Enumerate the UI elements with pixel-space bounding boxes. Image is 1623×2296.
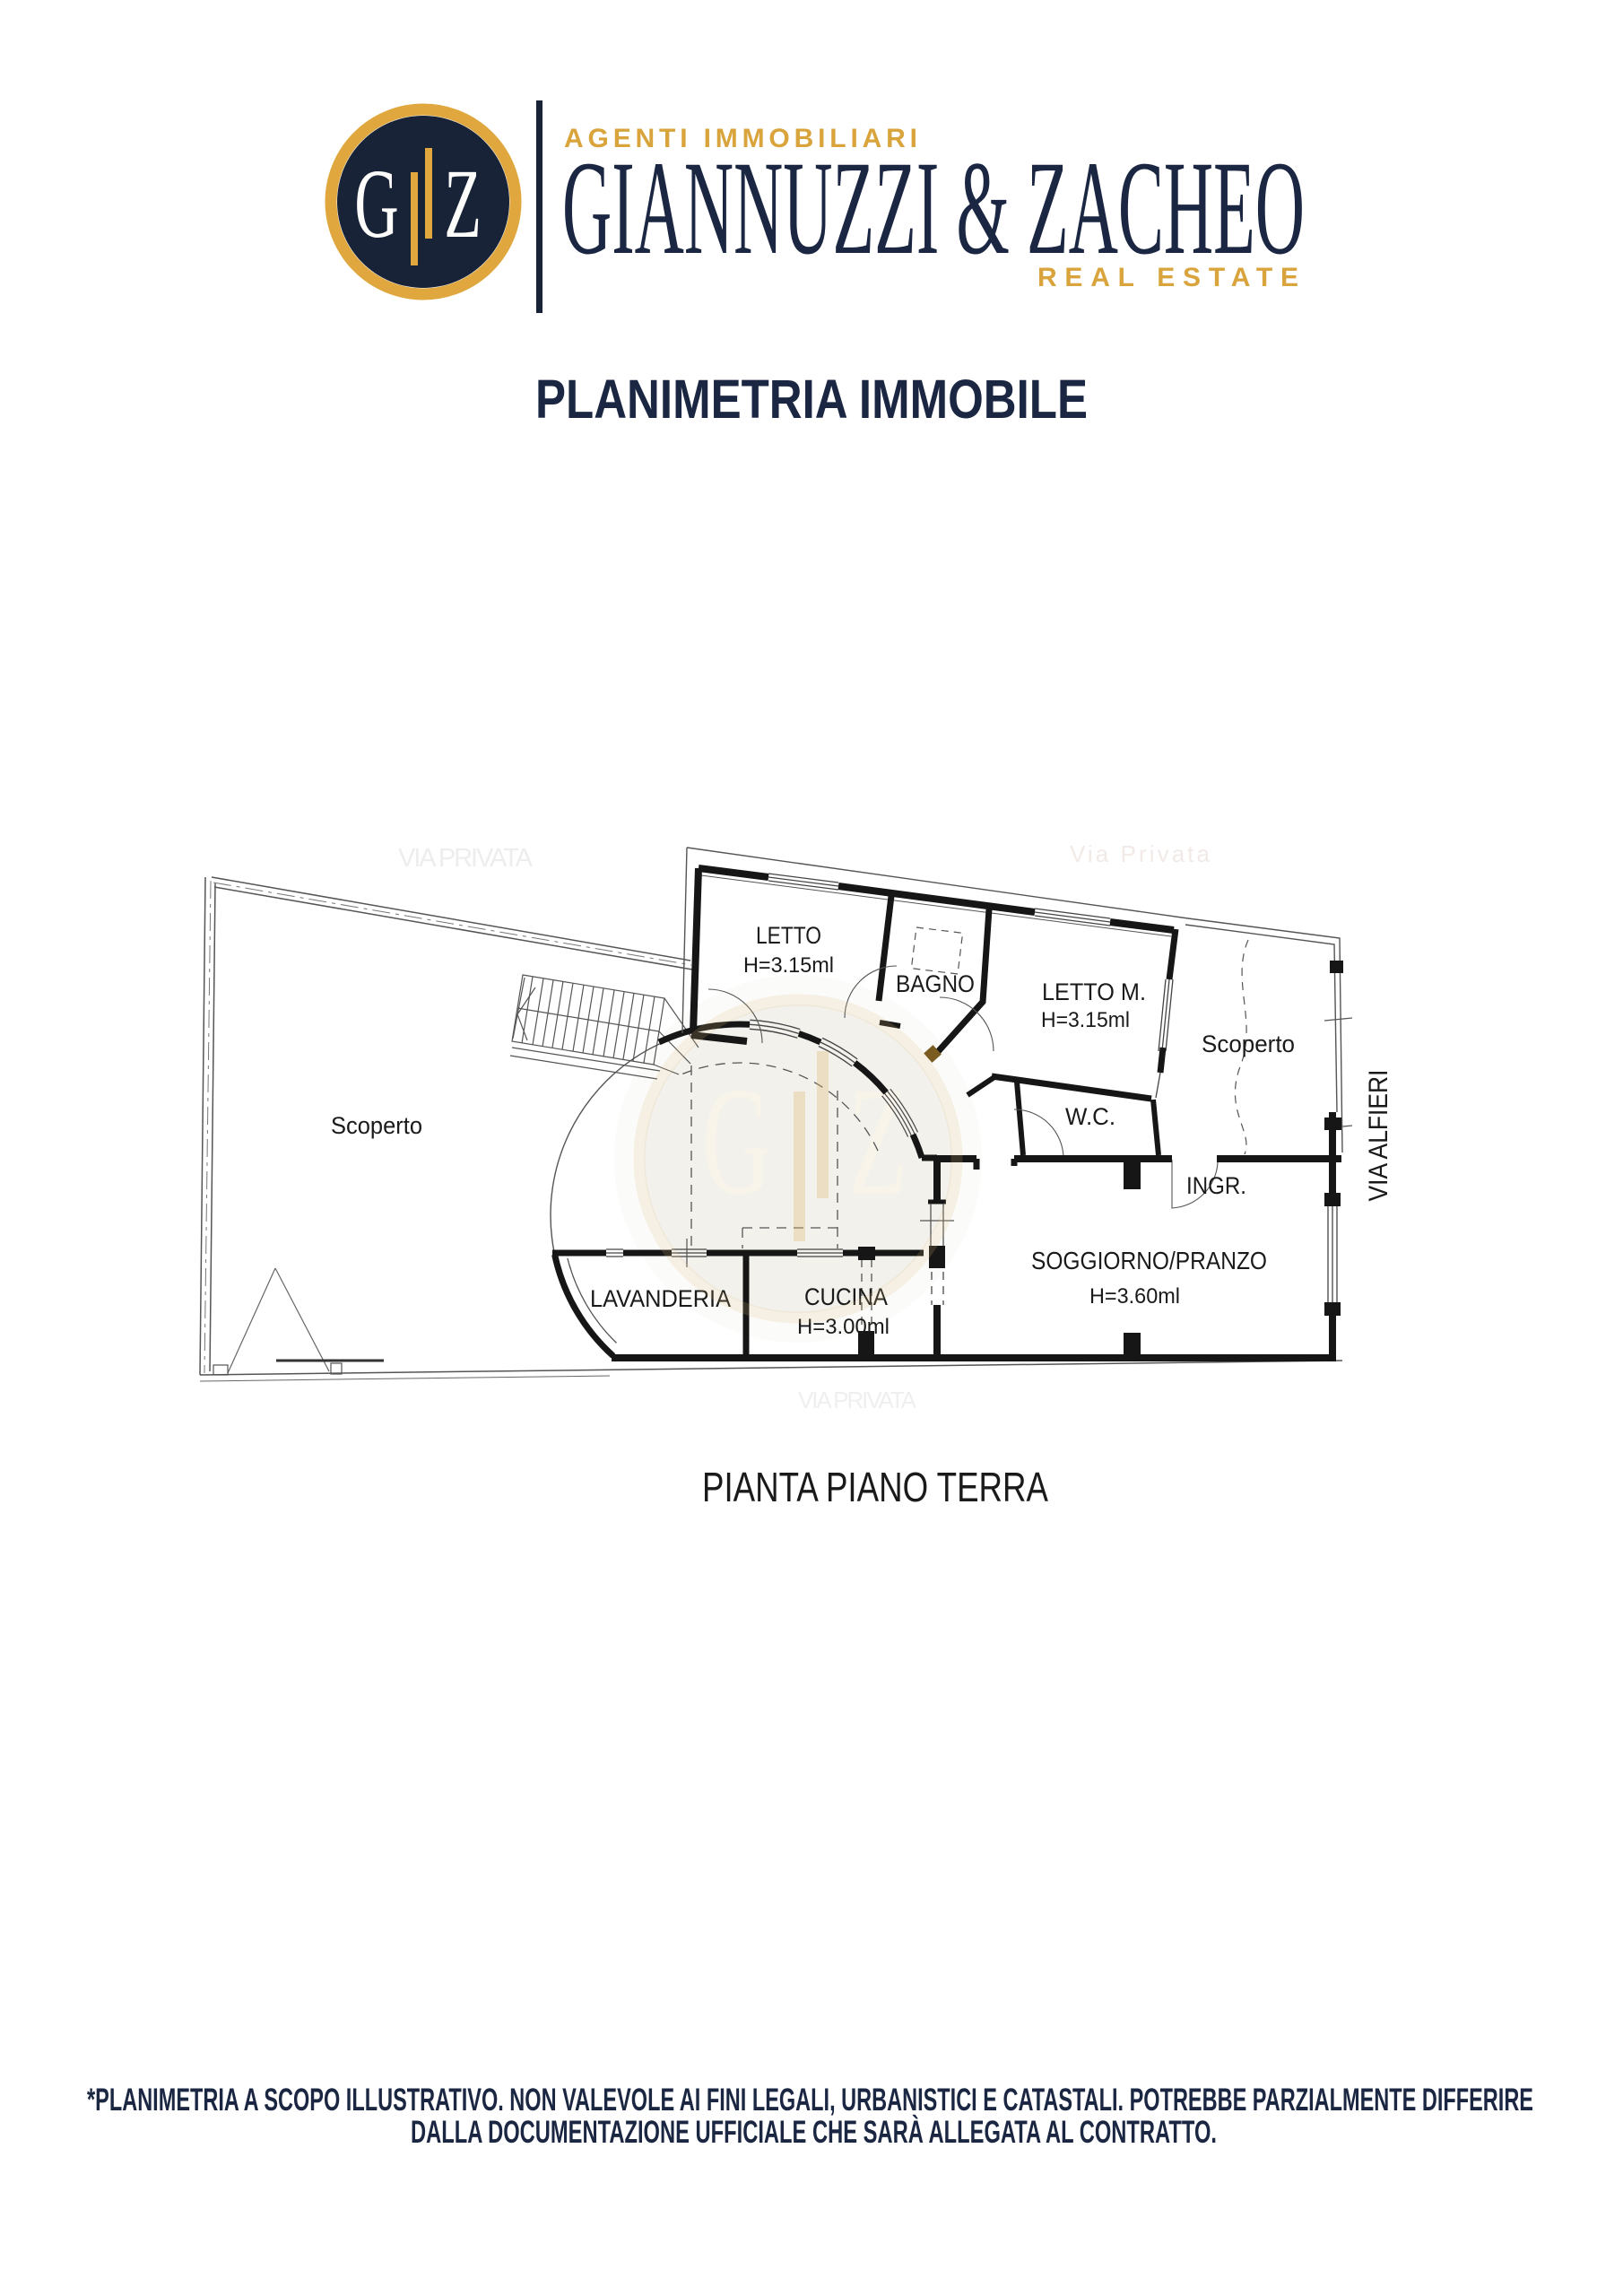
svg-text:H=3.15ml: H=3.15ml (1041, 1008, 1130, 1032)
svg-text:W.C.: W.C. (1065, 1103, 1115, 1130)
svg-text:VIA ALFIERI: VIA ALFIERI (1364, 1070, 1393, 1202)
svg-text:Z: Z (444, 148, 482, 258)
svg-text:INGR.: INGR. (1186, 1172, 1246, 1199)
svg-text:PLANIMETRIA IMMOBILE: PLANIMETRIA IMMOBILE (535, 369, 1088, 430)
svg-text:Scoperto: Scoperto (331, 1112, 422, 1139)
svg-text:Scoperto: Scoperto (1202, 1031, 1295, 1057)
svg-text:*PLANIMETRIA A SCOPO ILLUSTRAT: *PLANIMETRIA A SCOPO ILLUSTRATIVO. NON V… (87, 2083, 1533, 2118)
svg-text:GIANNUZZI & ZACHEO: GIANNUZZI & ZACHEO (562, 134, 1305, 283)
svg-text:LETTO: LETTO (756, 922, 821, 949)
svg-text:H=3.60ml: H=3.60ml (1089, 1284, 1180, 1309)
svg-text:REAL ESTATE: REAL ESTATE (1037, 263, 1306, 292)
svg-text:G: G (354, 148, 398, 258)
svg-text:VIA PRIVATA: VIA PRIVATA (798, 1387, 917, 1413)
svg-text:Via Privata: Via Privata (1070, 840, 1211, 867)
svg-text:DALLA DOCUMENTAZIONE UFFICIALE: DALLA DOCUMENTAZIONE UFFICIALE CHE SARÀ … (411, 2114, 1217, 2150)
svg-text:VIA PRIVATA: VIA PRIVATA (398, 844, 534, 873)
svg-text:SOGGIORNO/PRANZO: SOGGIORNO/PRANZO (1031, 1247, 1267, 1274)
svg-text:BAGNO: BAGNO (896, 970, 975, 997)
svg-text:LETTO M.: LETTO M. (1042, 978, 1146, 1005)
svg-text:PIANTA PIANO TERRA: PIANTA PIANO TERRA (702, 1464, 1048, 1510)
svg-text:H=3.15ml: H=3.15ml (743, 953, 834, 978)
svg-text:G: G (702, 1055, 771, 1226)
